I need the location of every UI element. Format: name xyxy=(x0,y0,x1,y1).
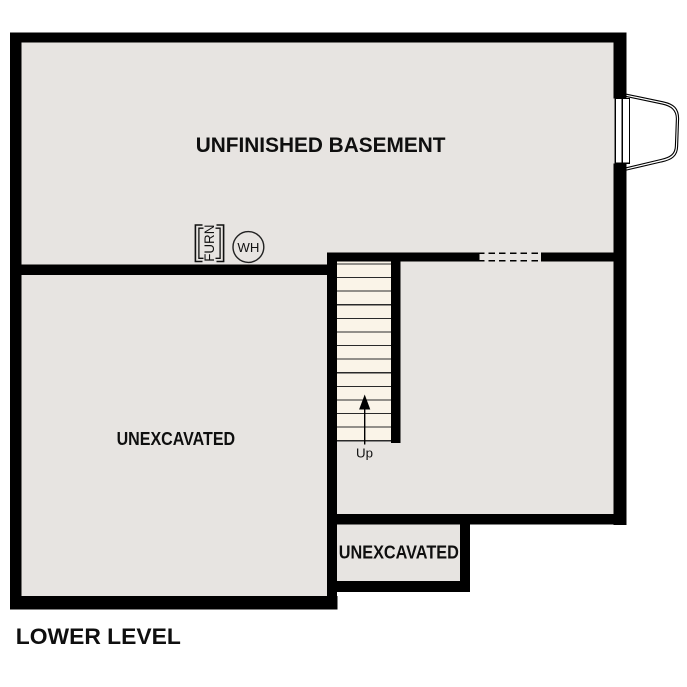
svg-text:FURN: FURN xyxy=(202,225,217,262)
svg-text:LOWER LEVEL: LOWER LEVEL xyxy=(16,624,181,649)
svg-text:UNFINISHED BASEMENT: UNFINISHED BASEMENT xyxy=(196,134,446,157)
svg-text:WH: WH xyxy=(237,240,259,255)
svg-text:UNEXCAVATED: UNEXCAVATED xyxy=(339,542,459,563)
svg-text:UNEXCAVATED: UNEXCAVATED xyxy=(117,428,236,449)
svg-text:Up: Up xyxy=(356,445,373,460)
